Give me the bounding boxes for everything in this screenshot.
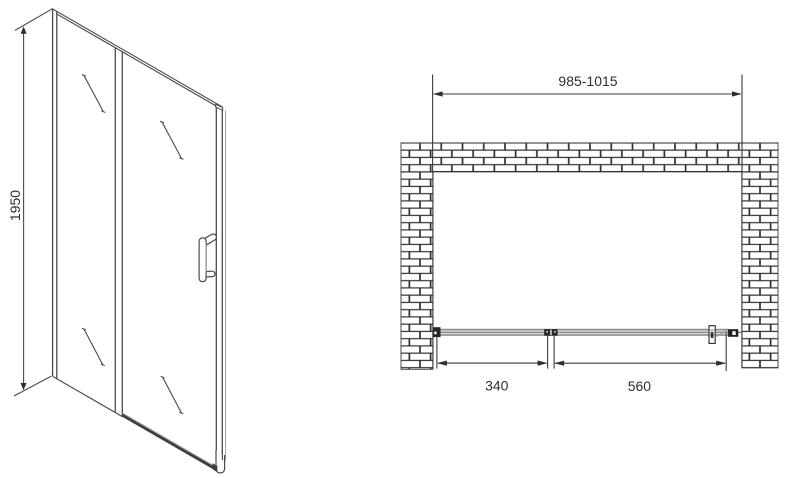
svg-text:340: 340: [485, 378, 509, 394]
svg-text:985-1015: 985-1015: [558, 73, 617, 89]
svg-text:560: 560: [628, 378, 652, 394]
svg-text:1950: 1950: [7, 190, 23, 221]
